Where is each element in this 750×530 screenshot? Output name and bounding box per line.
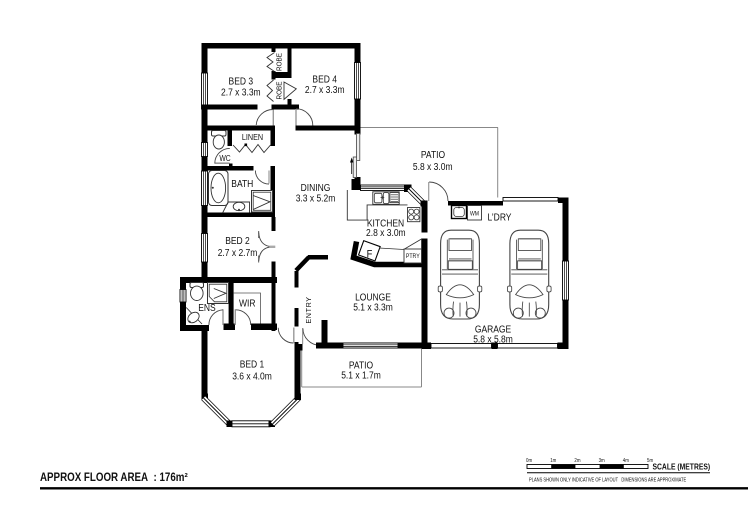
svg-text:WIR: WIR (239, 298, 256, 309)
svg-text:5.8 x 3.0m: 5.8 x 3.0m (413, 161, 453, 172)
svg-text:ENTRY: ENTRY (304, 296, 313, 323)
svg-text:1m: 1m (550, 458, 556, 464)
svg-text:3.3 x 5.2m: 3.3 x 5.2m (296, 193, 336, 204)
svg-text:ENS: ENS (198, 302, 215, 313)
svg-text:4m: 4m (623, 458, 629, 464)
svg-text:APPROX FLOOR AREA : 176m²: APPROX FLOOR AREA : 176m² (40, 471, 188, 484)
svg-text:ROBE: ROBE (276, 81, 284, 99)
svg-text:5.8 x 5.8m: 5.8 x 5.8m (473, 334, 513, 345)
svg-text:BED 2: BED 2 (225, 236, 250, 247)
svg-text:WC: WC (219, 153, 231, 163)
svg-text:PLANS SHOWN ONLY INDICATIVE OF: PLANS SHOWN ONLY INDICATIVE OF LAYOUT DI… (529, 477, 686, 483)
svg-text:2.7 x 3.3m: 2.7 x 3.3m (221, 87, 261, 98)
svg-text:5.1 x 3.3m: 5.1 x 3.3m (353, 302, 393, 313)
svg-text:F: F (367, 249, 373, 261)
svg-text:BED 3: BED 3 (229, 76, 254, 87)
svg-text:0m: 0m (526, 458, 532, 464)
svg-text:3.6 x 4.0m: 3.6 x 4.0m (232, 371, 272, 382)
svg-text:BED 4: BED 4 (312, 74, 337, 85)
svg-text:5.1 x 1.7m: 5.1 x 1.7m (341, 370, 381, 381)
svg-text:WM: WM (470, 211, 479, 217)
svg-text:2m: 2m (574, 458, 580, 464)
svg-text:LINEN: LINEN (242, 133, 264, 143)
svg-text:PTRY: PTRY (406, 254, 420, 260)
svg-text:BED 1: BED 1 (240, 359, 265, 370)
svg-text:L’DRY: L’DRY (488, 212, 512, 223)
svg-text:SCALE (METRES): SCALE (METRES) (653, 462, 711, 472)
svg-text:BATH: BATH (231, 179, 253, 190)
svg-text:ROBE: ROBE (276, 53, 284, 71)
svg-text:DINING: DINING (301, 182, 331, 193)
svg-text:2.7 x 2.7m: 2.7 x 2.7m (218, 247, 258, 258)
svg-text:3m: 3m (599, 458, 605, 464)
svg-text:2.8 x 3.0m: 2.8 x 3.0m (366, 227, 406, 238)
svg-text:2.7 x 3.3m: 2.7 x 3.3m (305, 85, 345, 96)
svg-text:PATIO: PATIO (421, 149, 445, 160)
